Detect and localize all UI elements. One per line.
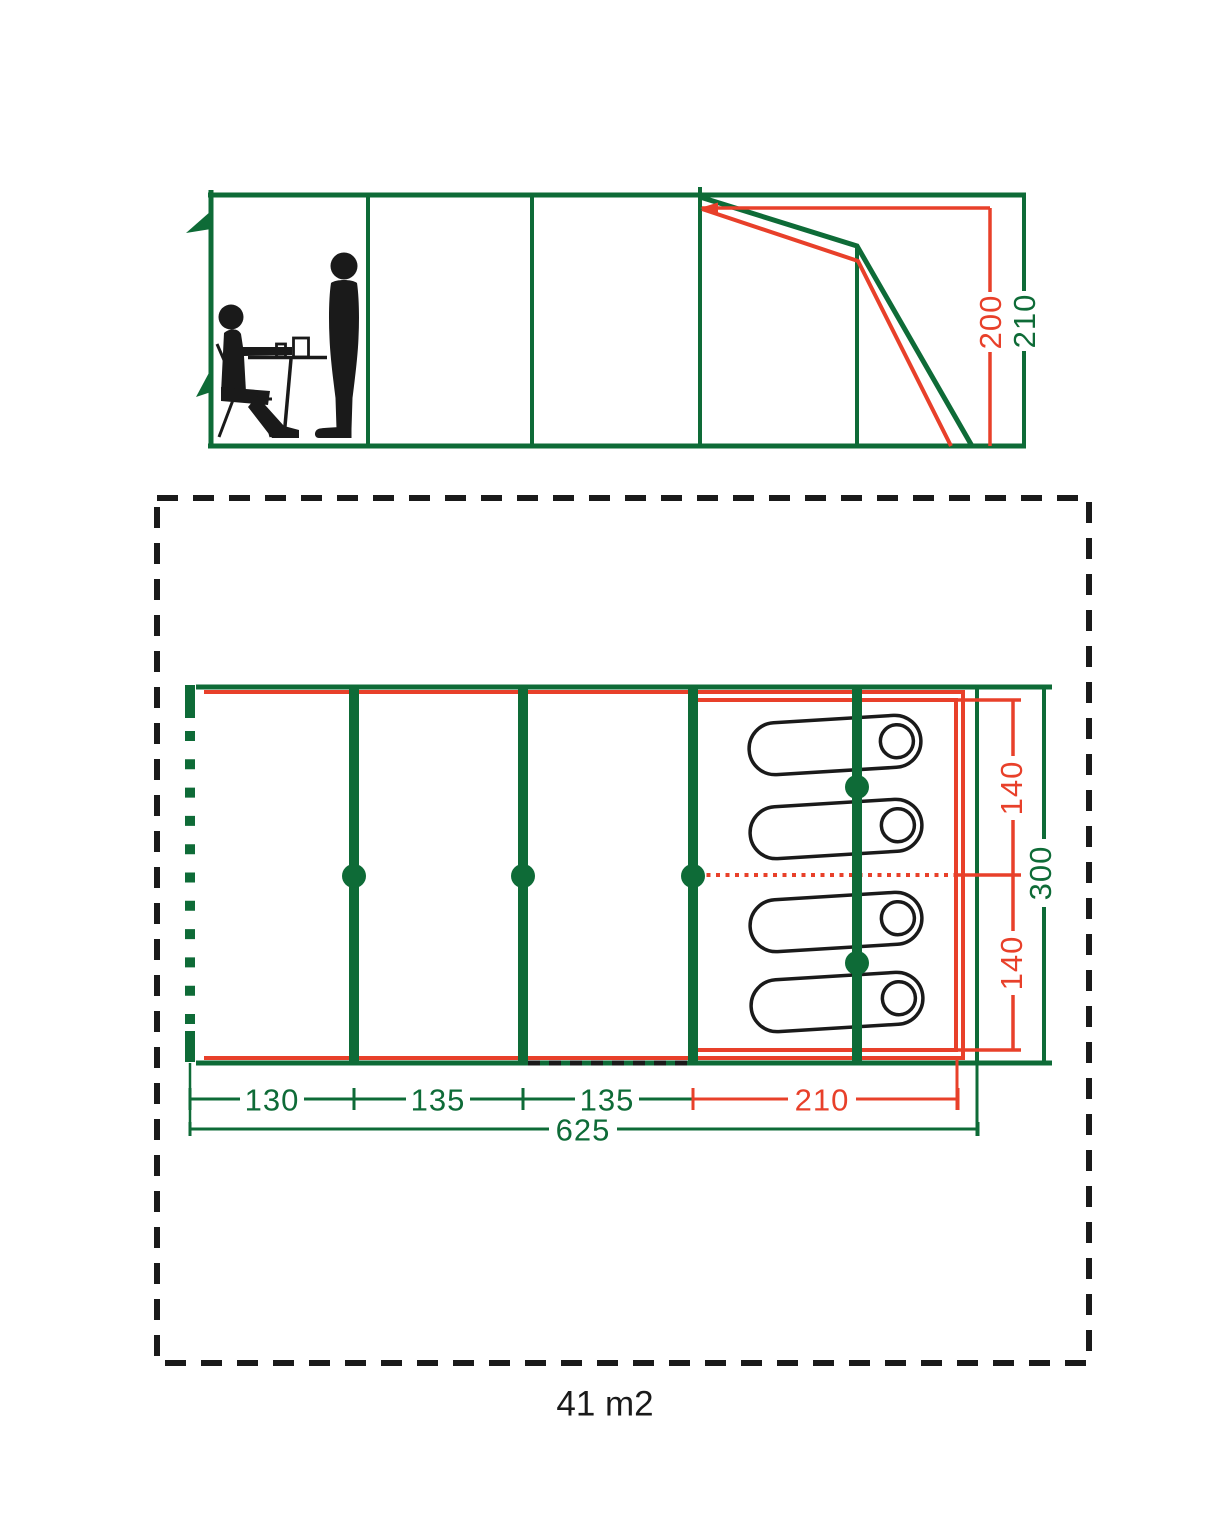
pillow-icon xyxy=(880,808,915,843)
pitch-area-border xyxy=(157,498,1089,1363)
side-elevation-view: 200 210 xyxy=(186,187,1042,448)
standing-person-body xyxy=(329,280,359,429)
pole-joint-dot xyxy=(511,864,535,888)
pillow-icon xyxy=(879,724,914,759)
tent-dimension-diagram: 200 210 xyxy=(0,0,1214,1537)
length-dimensions: 130 135 135 210 625 xyxy=(190,1058,978,1148)
standing-person-head xyxy=(331,253,358,280)
pillow-icon xyxy=(880,901,915,936)
floor-plan-view: 140 140 300 130 135 135 210 xyxy=(157,498,1089,1424)
tent-poles xyxy=(342,688,869,1062)
dim-label-210: 210 xyxy=(1007,294,1042,349)
pole-joint-dot xyxy=(342,864,366,888)
seated-person-head xyxy=(219,305,244,330)
sleeping-bag xyxy=(750,971,925,1033)
sleeping-bag xyxy=(749,798,924,860)
dim-label-135-a: 135 xyxy=(411,1083,466,1118)
dim-label-130: 130 xyxy=(245,1083,300,1118)
guy-line-flag-icon xyxy=(186,211,211,397)
dim-label-300: 300 xyxy=(1023,846,1058,901)
standing-person-icon xyxy=(315,253,359,439)
pillow-icon xyxy=(881,981,916,1016)
side-rear-slope-inner xyxy=(702,209,951,446)
sleeping-bag xyxy=(748,714,923,776)
width-dimensions: 140 140 300 xyxy=(956,687,1058,1063)
dim-label-200: 200 xyxy=(973,295,1008,350)
dim-label-140-bottom: 140 xyxy=(994,936,1029,991)
standing-person-feet xyxy=(315,427,352,438)
pole-joint-dot xyxy=(845,951,869,975)
dim-label-140-top: 140 xyxy=(994,761,1029,816)
mug-icon xyxy=(294,338,309,357)
flag-top-icon xyxy=(186,211,211,233)
diagram-svg: 200 210 xyxy=(0,0,1214,1537)
pitch-area-label: 41 m2 xyxy=(556,1385,653,1424)
sleeping-bag xyxy=(749,891,924,953)
seated-person-torso xyxy=(221,329,292,393)
table-leg xyxy=(284,359,291,437)
dim-label-625: 625 xyxy=(556,1113,611,1148)
pole-joint-dot xyxy=(681,864,705,888)
seated-person-leg xyxy=(248,396,299,438)
dim-label-210-plan: 210 xyxy=(795,1083,850,1118)
pole-joint-dot xyxy=(845,775,869,799)
